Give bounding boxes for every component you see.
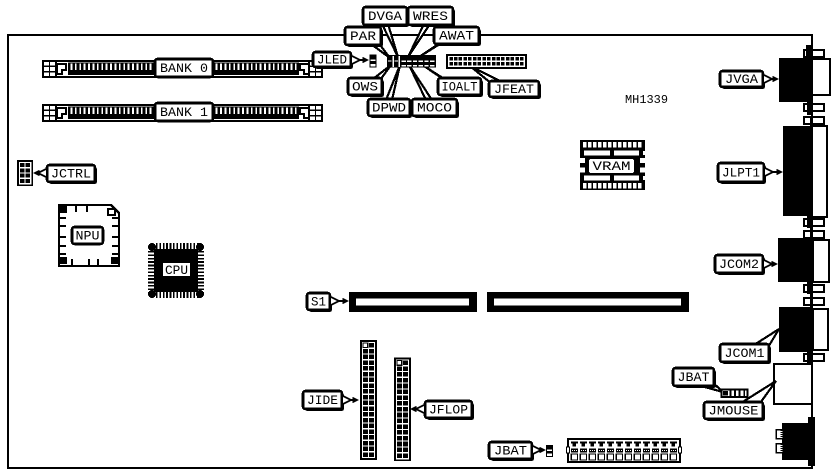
svg-text:JMOUSE: JMOUSE xyxy=(709,404,759,419)
svg-text:BANK 0: BANK 0 xyxy=(160,61,208,76)
svg-text:MH1339: MH1339 xyxy=(625,93,668,107)
svg-text:IOALT: IOALT xyxy=(442,80,478,95)
svg-text:WRES: WRES xyxy=(413,9,448,24)
svg-text:PAR: PAR xyxy=(350,29,376,44)
svg-text:JBAT: JBAT xyxy=(678,370,710,385)
svg-text:DPWD: DPWD xyxy=(372,101,406,116)
svg-text:CPU: CPU xyxy=(165,263,188,278)
svg-text:JLPT1: JLPT1 xyxy=(722,166,760,181)
svg-text:JLED: JLED xyxy=(317,53,347,68)
svg-text:VRAM: VRAM xyxy=(593,159,631,174)
svg-text:NPU: NPU xyxy=(76,229,100,244)
svg-text:S1: S1 xyxy=(311,295,326,310)
svg-text:JFLOP: JFLOP xyxy=(429,403,468,418)
svg-text:JCOM2: JCOM2 xyxy=(719,257,759,272)
svg-text:OWS: OWS xyxy=(352,80,378,95)
svg-text:AWAT: AWAT xyxy=(439,29,474,44)
svg-text:DVGA: DVGA xyxy=(368,9,402,24)
svg-text:JCOM1: JCOM1 xyxy=(725,346,765,361)
svg-text:BANK 1: BANK 1 xyxy=(160,105,208,120)
svg-text:JBAT: JBAT xyxy=(494,444,527,459)
svg-text:JVGA: JVGA xyxy=(725,72,758,87)
svg-text:MOCO: MOCO xyxy=(417,101,452,116)
svg-text:JIDE: JIDE xyxy=(307,393,338,408)
svg-text:JCTRL: JCTRL xyxy=(51,167,91,182)
svg-text:JFEAT: JFEAT xyxy=(494,82,534,97)
